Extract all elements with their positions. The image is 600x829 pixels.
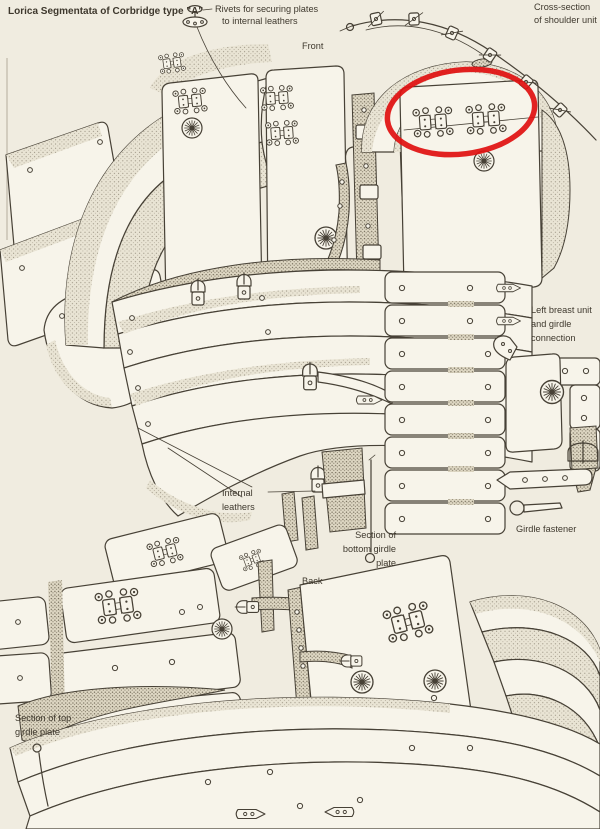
left-breast-label-line3: connection [531, 333, 575, 343]
rosette-boss-icon [541, 381, 564, 404]
left-breast-label-line2: and girdle [531, 319, 571, 329]
cross-section-label-line1: Cross-section [534, 2, 590, 12]
buckle-icon [340, 655, 362, 667]
figure-title: Lorica Segmentata of Corbridge type "A" [8, 6, 203, 17]
buckle-icon [303, 362, 318, 389]
buckle-icon [237, 273, 251, 299]
section-top-label-line2: girdle plate [15, 727, 60, 737]
internal-leathers-label-line2: leathers [222, 502, 255, 512]
rivets-label-line2: to internal leathers [222, 16, 298, 26]
front-label: Front [302, 41, 324, 51]
back-label: Back [302, 576, 323, 586]
rosette-boss-icon [212, 619, 232, 639]
section-bottom-label-line2: bottom girdle [343, 544, 396, 554]
rosette-boss-icon [351, 671, 373, 693]
rivets-label-line1: Rivets for securing plates [215, 4, 319, 14]
girdle-fastener-label: Girdle fastener [516, 524, 576, 534]
lorica-segmentata-diagram: Lorica Segmentata of Corbridge type "A" … [0, 0, 600, 829]
buckle-icon [235, 601, 258, 614]
section-top-label-line1: Section of top [15, 713, 71, 723]
rosette-boss-icon [182, 118, 202, 138]
internal-leathers-label-line1: Internal [222, 488, 253, 498]
rosette-boss-icon [424, 670, 446, 692]
buckle-icon [191, 279, 205, 305]
left-breast-label-line1: Left breast unit [531, 305, 592, 315]
section-bottom-label-line3: plate [376, 558, 396, 568]
section-bottom-label-line1: Section of [355, 530, 396, 540]
cross-section-label-line2: of shoulder unit [534, 15, 597, 25]
scanned-book-page: Lorica Segmentata of Corbridge type "A" … [0, 0, 600, 829]
